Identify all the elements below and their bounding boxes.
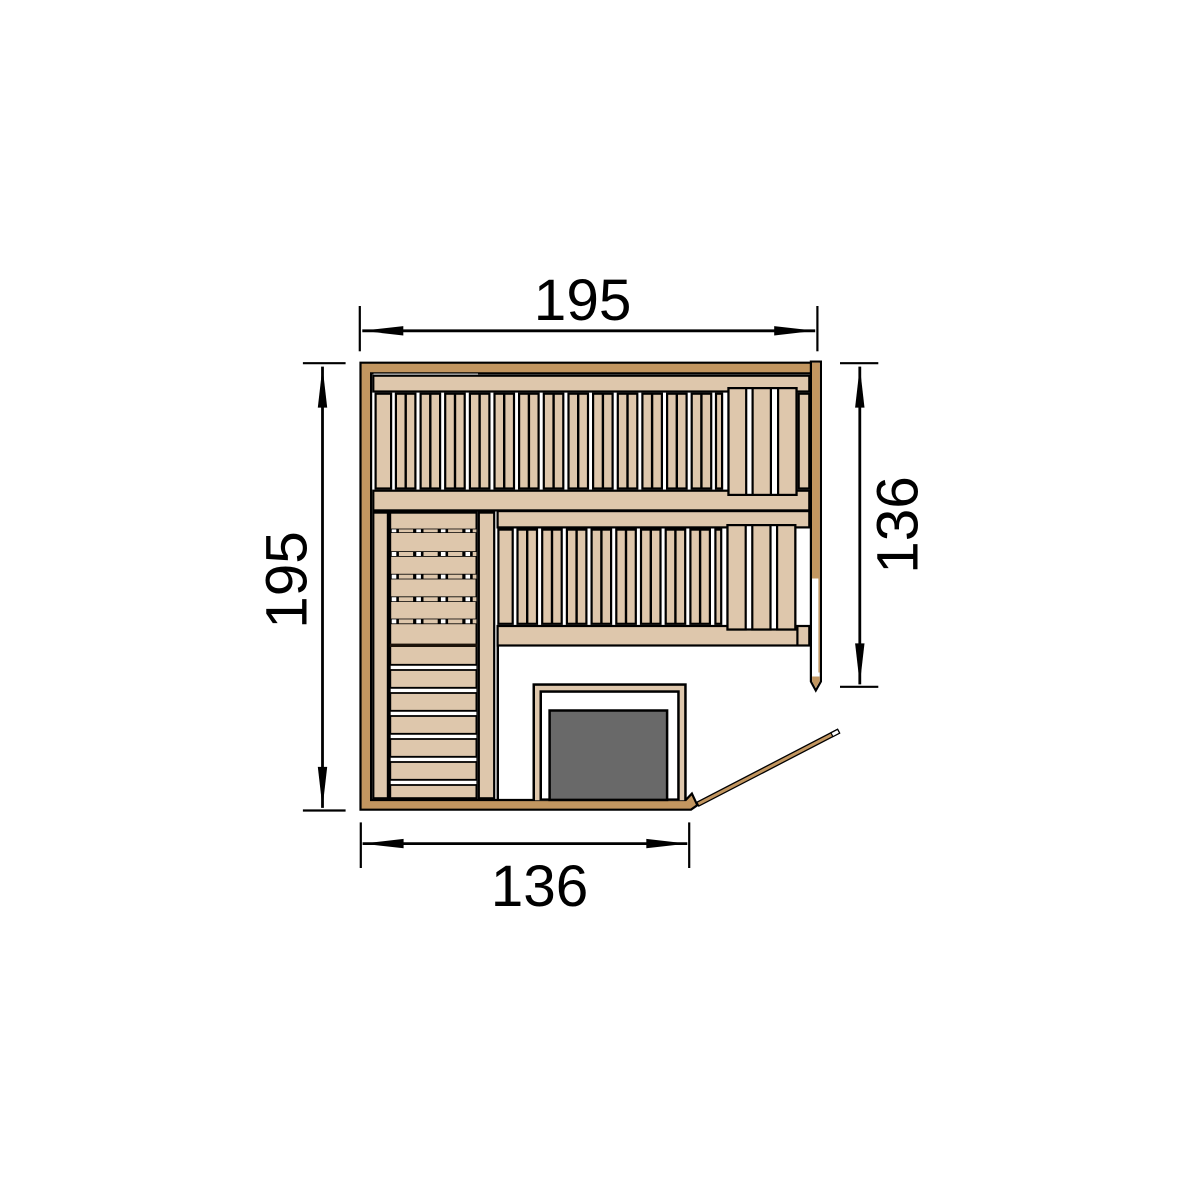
svg-text:195: 195 <box>534 268 632 333</box>
svg-text:136: 136 <box>491 854 589 919</box>
svg-text:195: 195 <box>255 531 320 629</box>
svg-text:136: 136 <box>866 476 931 574</box>
